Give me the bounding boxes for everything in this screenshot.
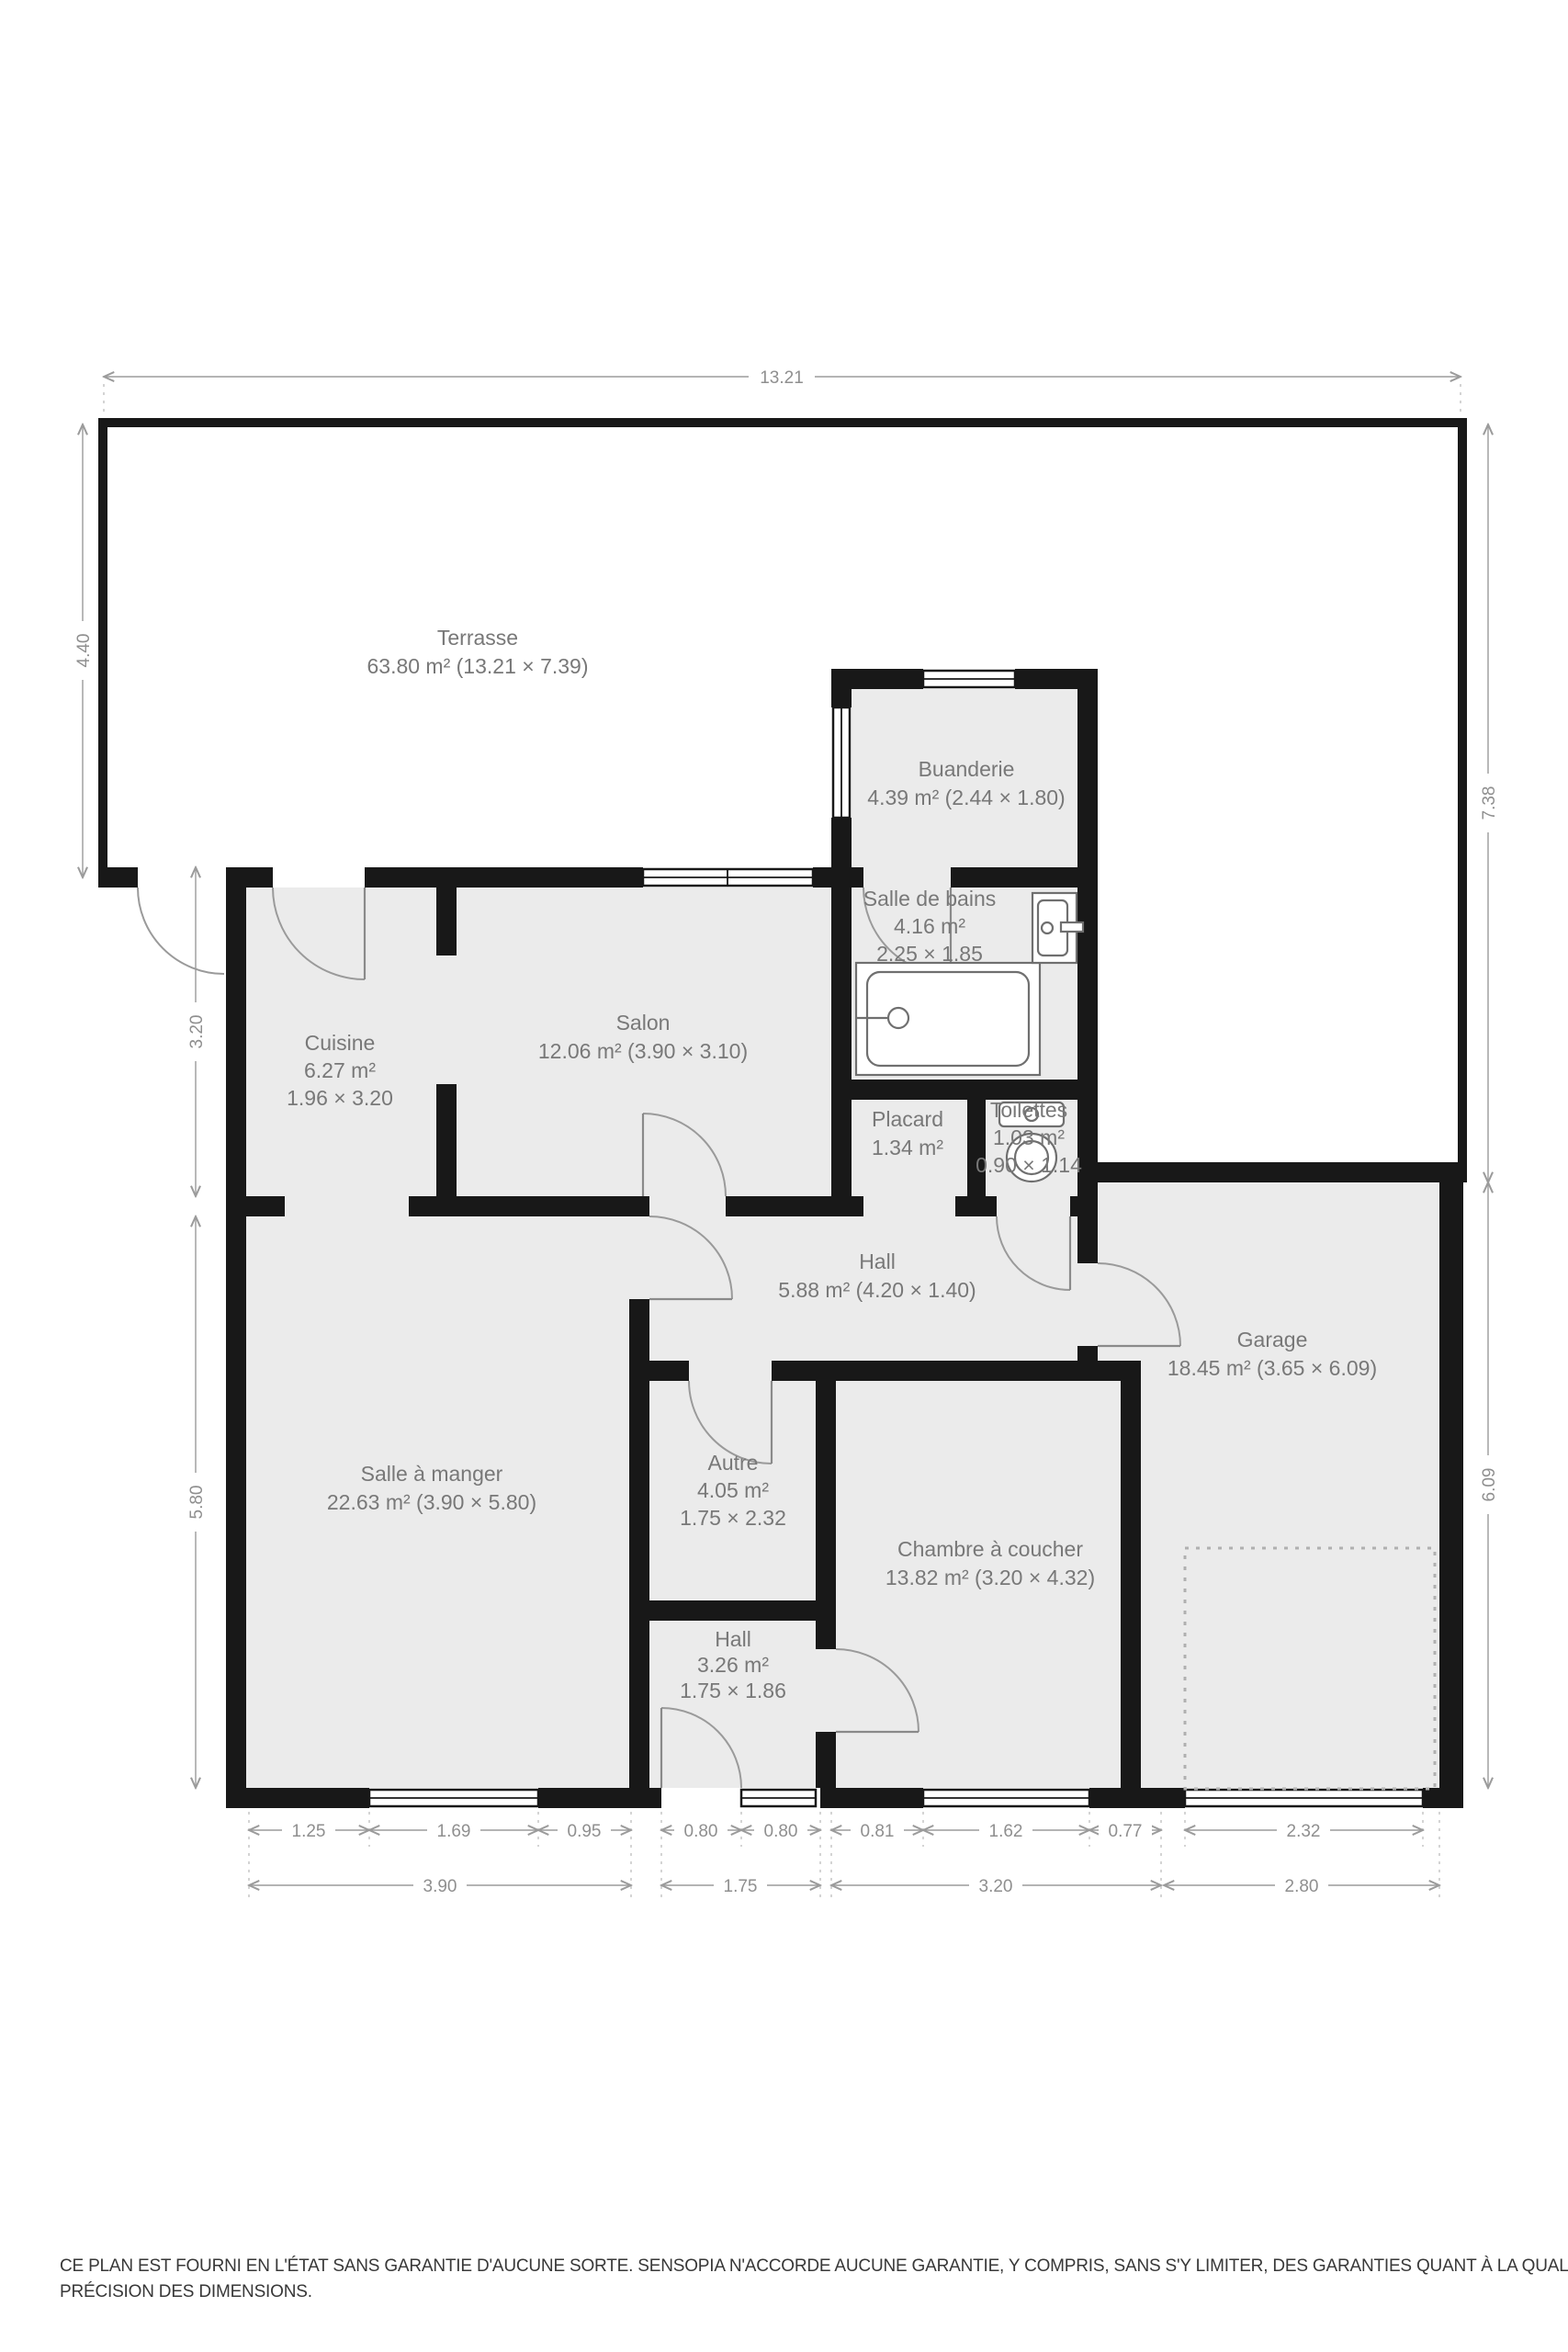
label-sdb-name: Salle de bains (863, 887, 997, 910)
floor-plan-page: 13.21 4.40 3.20 5.80 7.38 6.09 (0, 0, 1568, 2352)
dim-b2-1: 1.75 (724, 1877, 758, 1896)
disclaimer: CE PLAN EST FOURNI EN L'ÉTAT SANS GARANT… (60, 2256, 1568, 2301)
dim-b2-2: 3.20 (979, 1877, 1013, 1896)
bathtub-icon (856, 963, 1040, 1075)
label-hall2-dims: 1.75 × 1.86 (680, 1679, 786, 1702)
room-garage-floor (1098, 1182, 1439, 1788)
dim-right-lower: 6.09 (1480, 1468, 1499, 1502)
chambre-window (923, 1790, 1089, 1806)
dim-b2-0: 3.90 (423, 1877, 457, 1896)
label-salon-area: 12.06 m² (3.90 × 3.10) (538, 1039, 748, 1063)
hall2-window (741, 1790, 816, 1806)
label-buanderie-name: Buanderie (919, 757, 1015, 781)
dim-b1-5: 0.81 (861, 1822, 895, 1841)
label-cuisine-dims: 1.96 × 3.20 (287, 1086, 393, 1110)
label-terrasse-name: Terrasse (437, 626, 518, 650)
label-toilettes-name: Toilettes (990, 1098, 1067, 1122)
label-hall2-name: Hall (715, 1627, 751, 1651)
label-sam-name: Salle à manger (361, 1462, 503, 1486)
opening-placard (863, 1196, 955, 1216)
label-buanderie-area: 4.39 m² (2.44 × 1.80) (867, 786, 1065, 809)
dim-b1-2: 0.95 (568, 1822, 602, 1841)
floor-plan: 13.21 4.40 3.20 5.80 7.38 6.09 (0, 0, 1568, 2352)
label-sdb-area: 4.16 m² (894, 914, 965, 938)
disclaimer-line-1: CE PLAN EST FOURNI EN L'ÉTAT SANS GARANT… (60, 2256, 1568, 2276)
disclaimer-line-2: PRÉCISION DES DIMENSIONS. (60, 2282, 312, 2301)
dim-left-upper: 3.20 (187, 1015, 207, 1049)
label-terrasse-area: 63.80 m² (13.21 × 7.39) (367, 654, 588, 678)
dim-right-upper: 7.38 (1480, 786, 1499, 820)
dim-top: 13.21 (760, 368, 804, 388)
dim-b2-3: 2.80 (1285, 1877, 1319, 1896)
label-chambre-name: Chambre à coucher (897, 1537, 1083, 1561)
dim-b1-8: 2.32 (1287, 1822, 1321, 1841)
opening-toilettes (997, 1196, 1070, 1216)
buanderie-left-window (833, 707, 850, 818)
opening-sam-hall (629, 1216, 649, 1299)
opening-salon-hall (643, 1196, 726, 1216)
opening-autre (689, 1361, 772, 1381)
label-sdb-dims: 2.25 × 1.85 (876, 942, 983, 966)
label-chambre-area: 13.82 m² (3.20 × 4.32) (886, 1566, 1095, 1589)
entrance-door-arc (138, 888, 224, 974)
salle-a-manger-window (369, 1790, 538, 1806)
label-autre-dims: 1.75 × 2.32 (680, 1506, 786, 1530)
dim-b1-3: 0.80 (684, 1822, 718, 1841)
garage-door-opening (1185, 1790, 1423, 1806)
label-toilettes-dims: 0.90 × 1.14 (976, 1153, 1082, 1177)
salon-window (643, 869, 813, 886)
label-hall-name: Hall (859, 1249, 896, 1273)
dim-b1-4: 0.80 (764, 1822, 798, 1841)
opening-buanderie-sdb (863, 867, 951, 888)
label-garage-area: 18.45 m² (3.65 × 6.09) (1168, 1356, 1377, 1380)
buanderie-top-window (923, 671, 1015, 687)
label-placard-area: 1.34 m² (872, 1136, 943, 1159)
dim-b1-1: 1.69 (437, 1822, 471, 1841)
dim-left-lower: 5.80 (187, 1486, 207, 1520)
label-placard-name: Placard (872, 1107, 943, 1131)
opening-hall-garage (1077, 1263, 1098, 1346)
label-salon-name: Salon (616, 1011, 671, 1035)
dim-b1-6: 1.62 (989, 1822, 1023, 1841)
opening-cuisine-sam (285, 1196, 409, 1216)
label-garage-name: Garage (1237, 1328, 1308, 1351)
label-hall-area: 5.88 m² (4.20 × 1.40) (778, 1278, 976, 1302)
water-heater-icon (1032, 893, 1083, 963)
label-sam-area: 22.63 m² (3.90 × 5.80) (327, 1490, 536, 1514)
opening-hall2-chambre (816, 1649, 836, 1732)
dim-left-terrace: 4.40 (74, 634, 94, 668)
label-autre-name: Autre (708, 1451, 759, 1475)
label-toilettes-area: 1.03 m² (993, 1125, 1065, 1149)
label-hall2-area: 3.26 m² (697, 1653, 769, 1677)
label-cuisine-name: Cuisine (305, 1031, 376, 1055)
label-autre-area: 4.05 m² (697, 1478, 769, 1502)
label-cuisine-area: 6.27 m² (304, 1058, 376, 1082)
dim-b1-7: 0.77 (1109, 1822, 1143, 1841)
dim-b1-0: 1.25 (292, 1822, 326, 1841)
